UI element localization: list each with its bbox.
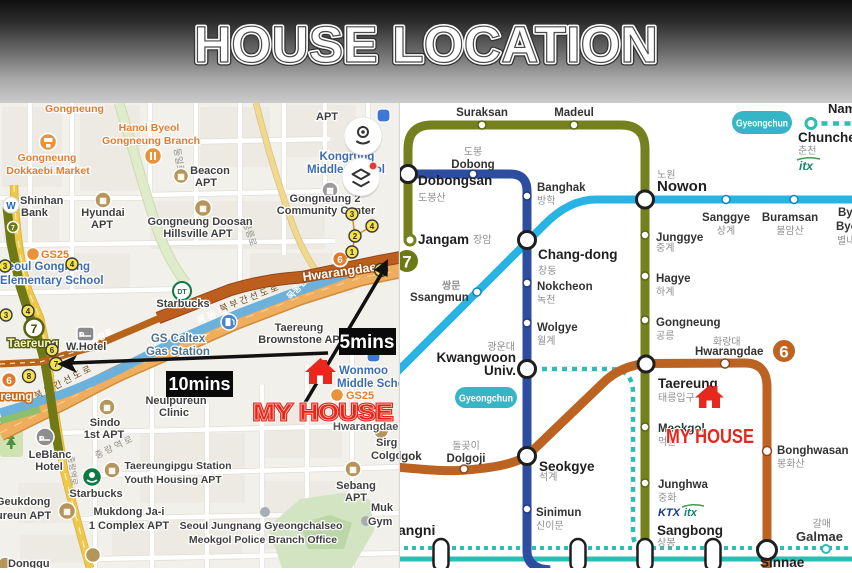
svg-text:lgok: lgok	[400, 451, 422, 463]
svg-text:Seoul Jungnang Gyeongchalseo: Seoul Jungnang Gyeongchalseo	[180, 520, 343, 532]
svg-text:Sindo: Sindo	[90, 417, 121, 429]
svg-text:APT: APT	[91, 219, 113, 231]
svg-text:7: 7	[54, 360, 59, 369]
svg-text:3: 3	[3, 262, 8, 271]
svg-text:Gongneung: Gongneung	[18, 152, 77, 164]
svg-text:3: 3	[4, 311, 9, 320]
svg-text:APT: APT	[195, 177, 217, 189]
svg-text:Youth Housing APT: Youth Housing APT	[124, 474, 222, 486]
svg-text:Gongneung: Gongneung	[656, 317, 721, 329]
svg-text:Colgok: Colgok	[371, 450, 400, 462]
svg-text:Gongneung Branch: Gongneung Branch	[102, 135, 200, 147]
svg-text:Banghak: Banghak	[537, 182, 586, 194]
svg-text:6: 6	[6, 376, 12, 387]
svg-text:Sinimun: Sinimun	[536, 507, 581, 519]
svg-text:1st APT: 1st APT	[84, 429, 125, 441]
svg-text:ereung: ereung	[0, 391, 32, 403]
svg-text:불암산: 불암산	[776, 225, 804, 237]
svg-text:Univ.: Univ.	[484, 363, 516, 378]
svg-text:Sanggye: Sanggye	[702, 212, 750, 224]
svg-text:7: 7	[31, 322, 38, 336]
svg-text:Bank: Bank	[21, 207, 49, 219]
svg-text:창동: 창동	[538, 265, 556, 277]
svg-text:4: 4	[70, 260, 75, 269]
svg-text:별내: 별내	[837, 235, 852, 247]
svg-text:▦: ▦	[199, 204, 207, 213]
svg-text:Donggu: Donggu	[8, 558, 50, 568]
svg-text:W: W	[6, 201, 16, 212]
svg-text:LeBlanc: LeBlanc	[29, 449, 72, 461]
svg-text:Gyeongchun: Gyeongchun	[459, 393, 513, 405]
svg-text:1 Complex APT: 1 Complex APT	[89, 520, 170, 532]
svg-text:Dobongsan: Dobongsan	[418, 173, 492, 188]
svg-text:월계: 월계	[537, 335, 555, 347]
svg-text:HOUSE LOCATION: HOUSE LOCATION	[194, 16, 658, 73]
svg-text:Clinic: Clinic	[159, 407, 189, 419]
svg-text:태릉입구: 태릉입구	[658, 391, 695, 404]
svg-text:Chang-dong: Chang-dong	[538, 247, 617, 262]
svg-text:도봉: 도봉	[464, 146, 482, 158]
svg-text:Taereung: Taereung	[275, 322, 324, 334]
svg-text:1: 1	[350, 248, 355, 257]
svg-text:Gongneung: Gongneung	[45, 103, 104, 115]
svg-text:4: 4	[370, 222, 375, 231]
svg-text:Sangbong: Sangbong	[657, 523, 723, 538]
svg-text:▦: ▦	[108, 466, 116, 475]
svg-text:6: 6	[50, 346, 55, 355]
svg-text:DT: DT	[177, 289, 187, 296]
svg-text:Sebang: Sebang	[336, 480, 376, 492]
svg-text:Buramsan: Buramsan	[762, 212, 818, 224]
svg-text:Mukdong Ja-i: Mukdong Ja-i	[94, 506, 165, 518]
svg-text:Muk: Muk	[371, 502, 394, 514]
svg-text:Bye: Bye	[836, 221, 852, 233]
svg-text:Dokkaebi Market: Dokkaebi Market	[6, 165, 90, 177]
svg-text:Gongneung 2: Gongneung 2	[290, 193, 361, 205]
svg-text:돌곶이: 돌곶이	[452, 440, 480, 452]
svg-text:Sinnae: Sinnae	[760, 555, 805, 568]
svg-text:Nam: Nam	[828, 103, 852, 116]
svg-text:Gym: Gym	[368, 516, 393, 528]
svg-text:W.Hotel: W.Hotel	[66, 341, 106, 353]
svg-text:2: 2	[353, 232, 358, 241]
svg-text:Jangam: Jangam	[418, 232, 469, 247]
svg-text:MY HOUSE: MY HOUSE	[666, 426, 754, 448]
svg-text:상계: 상계	[717, 225, 735, 237]
svg-text:Madeul: Madeul	[554, 107, 594, 119]
svg-text:도봉산: 도봉산	[418, 192, 446, 204]
svg-text:Wonmoo: Wonmoo	[339, 365, 388, 377]
svg-text:Taereungipgu Station: Taereungipgu Station	[124, 460, 231, 472]
svg-text:Dolgoji: Dolgoji	[447, 453, 486, 465]
svg-text:Seokgye: Seokgye	[539, 459, 595, 474]
svg-text:7: 7	[11, 225, 15, 232]
svg-text:▦: ▦	[349, 465, 357, 474]
svg-text:▦: ▦	[99, 196, 107, 205]
svg-text:Shinhan: Shinhan	[20, 195, 64, 207]
svg-text:GS25: GS25	[41, 249, 69, 261]
svg-text:MY HOUSE: MY HOUSE	[253, 399, 393, 425]
svg-text:Beacon: Beacon	[190, 165, 230, 177]
svg-text:4: 4	[26, 307, 31, 316]
svg-text:KTX: KTX	[658, 507, 681, 519]
svg-text:8: 8	[27, 372, 32, 381]
svg-text:Chunche: Chunche	[798, 130, 852, 145]
svg-text:Hotel: Hotel	[35, 461, 63, 473]
svg-text:itx: itx	[799, 159, 814, 173]
svg-text:6: 6	[779, 343, 788, 362]
svg-text:Galmae: Galmae	[796, 529, 843, 544]
svg-text:▦: ▦	[63, 507, 71, 516]
svg-text:5mins: 5mins	[340, 332, 395, 353]
svg-text:Gyeongchun: Gyeongchun	[736, 118, 788, 130]
svg-text:Wolgye: Wolgye	[537, 322, 578, 334]
svg-text:Suraksan: Suraksan	[456, 107, 508, 119]
svg-text:Meokgol Police Branch Office: Meokgol Police Branch Office	[189, 534, 337, 546]
svg-text:Nowon: Nowon	[657, 178, 707, 195]
svg-text:Junghwa: Junghwa	[658, 479, 708, 491]
svg-text:GS Caltex: GS Caltex	[151, 333, 206, 345]
svg-text:신이문: 신이문	[536, 520, 564, 532]
svg-text:itx: itx	[684, 507, 698, 519]
svg-text:▦: ▦	[103, 403, 111, 412]
svg-text:Middle Scho: Middle Scho	[337, 378, 400, 390]
svg-text:10mins: 10mins	[168, 374, 230, 394]
svg-text:Dobong: Dobong	[451, 159, 494, 171]
svg-text:By: By	[838, 207, 852, 219]
svg-text:3: 3	[350, 210, 355, 219]
svg-text:Bonghwasan: Bonghwasan	[777, 445, 849, 457]
svg-text:APT: APT	[316, 111, 338, 123]
svg-text:▦: ▦	[177, 172, 185, 181]
svg-text:하계: 하계	[656, 285, 674, 298]
svg-text:ureun APT: ureun APT	[0, 510, 51, 522]
svg-text:Sirg: Sirg	[376, 437, 397, 449]
svg-text:Hyundai: Hyundai	[81, 207, 124, 219]
svg-text:중화: 중화	[658, 492, 676, 504]
svg-text:공릉: 공릉	[656, 330, 674, 342]
svg-text:Community Center: Community Center	[277, 205, 376, 217]
svg-text:Elementary School: Elementary School	[0, 275, 104, 287]
svg-text:Brownstone AP: Brownstone AP	[258, 334, 340, 346]
svg-text:녹천: 녹천	[537, 294, 555, 306]
svg-text:Nokcheon: Nokcheon	[537, 281, 593, 293]
svg-text:Hagye: Hagye	[656, 273, 691, 285]
svg-text:봉화산: 봉화산	[777, 458, 805, 470]
svg-text:화랑대: 화랑대	[713, 336, 741, 348]
svg-text:장암: 장암	[473, 234, 491, 246]
svg-text:7: 7	[402, 253, 411, 272]
svg-text:APT: APT	[345, 492, 367, 504]
svg-text:Starbucks: Starbucks	[156, 298, 209, 310]
svg-text:Ssangmun: Ssangmun	[410, 292, 469, 304]
svg-text:방학: 방학	[537, 195, 555, 207]
svg-text:Starbucks: Starbucks	[69, 488, 122, 500]
svg-text:Gongneung Doosan: Gongneung Doosan	[147, 216, 252, 228]
svg-text:Hillsville APT: Hillsville APT	[163, 228, 233, 240]
svg-text:Geukdong: Geukdong	[0, 496, 50, 508]
svg-text:Hanoi Byeol: Hanoi Byeol	[119, 122, 180, 134]
svg-text:춘천: 춘천	[798, 145, 816, 157]
svg-text:쌍문: 쌍문	[442, 279, 460, 292]
svg-text:angni: angni	[400, 522, 435, 538]
svg-text:중계: 중계	[656, 242, 674, 254]
svg-text:상봉: 상봉	[657, 537, 675, 549]
